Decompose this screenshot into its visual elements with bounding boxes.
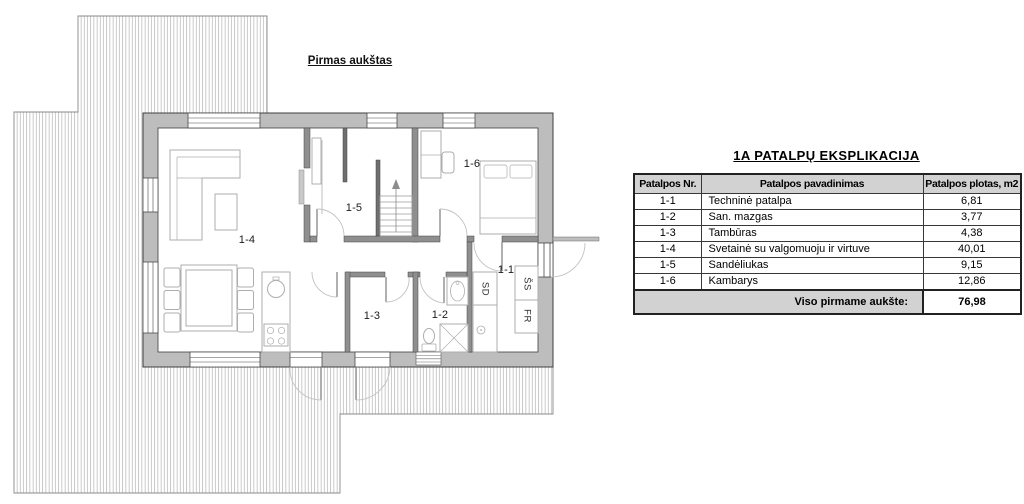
plan-title: Pirmas aukštas (308, 55, 392, 67)
room-name: Techninė patalpa (701, 194, 923, 210)
appliance-label-fr: FR (522, 309, 533, 323)
room-label-1-3: 1-3 (364, 310, 381, 322)
table-header-row: Patalpos Nr. Patalpos pavadinimas Patalp… (634, 174, 1021, 194)
total-label: Viso pirmame aukšte: (634, 290, 923, 314)
room-area: 9,15 (923, 258, 1021, 274)
room-label-1-6: 1-6 (464, 158, 481, 170)
room-label-1-4: 1-4 (239, 234, 256, 246)
explication-title: 1A PATALPŲ EKSPLIKACIJA (633, 148, 1020, 163)
room-label-1-5: 1-5 (346, 202, 363, 214)
room-label-1-2: 1-2 (432, 309, 449, 321)
toilet (424, 329, 435, 344)
page: Pirmas aukštas 1-4 1-5 1-6 1-1 1-3 1-2 S… (0, 0, 1024, 504)
appliance-label-ss: ŠS (522, 277, 533, 291)
room-nr: 1-3 (634, 226, 701, 242)
room-name: Tambūras (701, 226, 923, 242)
room-nr: 1-6 (634, 274, 701, 291)
room-area: 3,77 (923, 210, 1021, 226)
table-row: 1-2 San. mazgas 3,77 (634, 210, 1021, 226)
pillow (484, 165, 507, 178)
chair (442, 152, 454, 173)
room-area: 4,38 (923, 226, 1021, 242)
room-name: Svetainė su valgomuoju ir virtuve (701, 242, 923, 258)
explication-table: Patalpos Nr. Patalpos pavadinimas Patalp… (633, 173, 1022, 315)
table-row: 1-4 Svetainė su valgomuoju ir virtuve 40… (634, 242, 1021, 258)
table-row: 1-3 Tambūras 4,38 (634, 226, 1021, 242)
room-area: 40,01 (923, 242, 1021, 258)
col-header-name: Patalpos pavadinimas (701, 174, 923, 194)
room-area: 6,81 (923, 194, 1021, 210)
pillow (510, 165, 532, 178)
room-label-1-1: 1-1 (498, 264, 515, 276)
room-nr: 1-2 (634, 210, 701, 226)
kitchen-sink (268, 281, 285, 298)
kitchen-counter (262, 272, 290, 352)
col-header-nr: Patalpos Nr. (634, 174, 701, 194)
appliance-label-sd: SD (480, 282, 491, 296)
room-name: Kambarys (701, 274, 923, 291)
room-nr: 1-4 (634, 242, 701, 258)
table-row: 1-1 Techninė patalpa 6,81 (634, 194, 1021, 210)
floor-plan (0, 0, 632, 504)
explication-panel: 1A PATALPŲ EKSPLIKACIJA Patalpos Nr. Pat… (633, 148, 1020, 315)
room-nr: 1-5 (634, 258, 701, 274)
room-nr: 1-1 (634, 194, 701, 210)
table-row: 1-5 Sandėliukas 9,15 (634, 258, 1021, 274)
room-area: 12,86 (923, 274, 1021, 291)
exterior-steps (416, 352, 441, 365)
dining-set (164, 265, 254, 332)
coffee-table (215, 194, 237, 230)
table-row: 1-6 Kambarys 12,86 (634, 274, 1021, 291)
col-header-area: Patalpos plotas, m2 (923, 174, 1021, 194)
room-name: San. mazgas (701, 210, 923, 226)
wardrobe (421, 131, 441, 178)
total-value: 76,98 (923, 290, 1021, 314)
table-total-row: Viso pirmame aukšte: 76,98 (634, 290, 1021, 314)
room-name: Sandėliukas (701, 258, 923, 274)
